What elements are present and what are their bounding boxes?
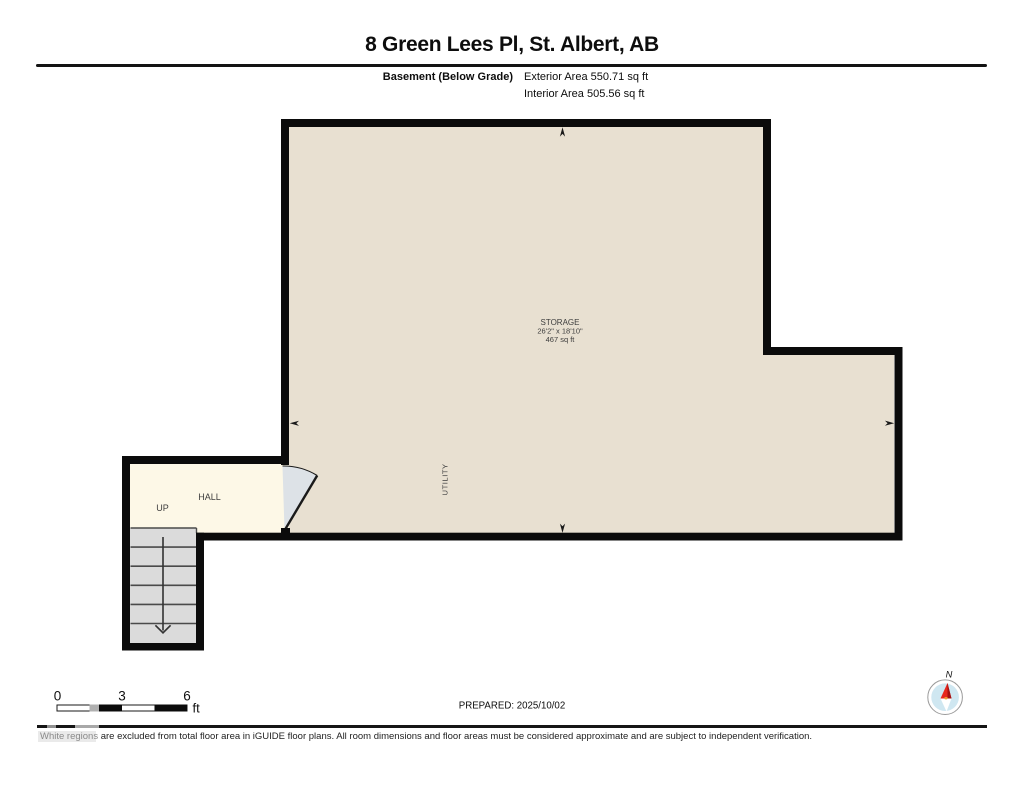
svg-text:467 sq ft: 467 sq ft (546, 335, 576, 344)
svg-text:UP: UP (156, 503, 169, 513)
svg-text:ft: ft (193, 701, 201, 716)
svg-text:HALL: HALL (198, 492, 221, 502)
svg-text:N: N (946, 670, 953, 680)
svg-text:6: 6 (183, 689, 191, 704)
svg-text:PREPARED: 2025/10/02: PREPARED: 2025/10/02 (459, 701, 565, 712)
svg-text:0: 0 (54, 689, 62, 704)
svg-text:3: 3 (118, 689, 126, 704)
svg-text:UTILITY: UTILITY (440, 463, 449, 495)
